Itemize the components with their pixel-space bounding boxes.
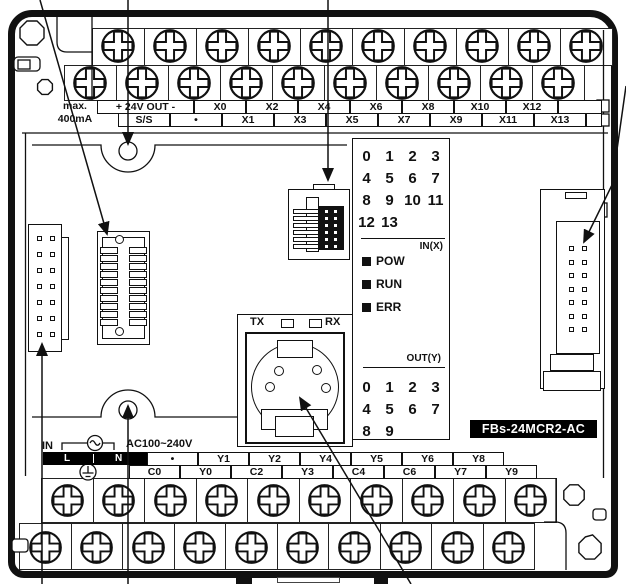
plc-device-diagram: max. 400mA + 24V OUT -X0X2X4X6X8X10X12S/… <box>0 0 626 584</box>
din-rail-clip <box>236 578 252 584</box>
power-input-area: IN AC100~240V L N <box>0 0 626 584</box>
ln-divider <box>93 454 94 463</box>
line-neutral-bar: L N <box>43 452 147 465</box>
neutral-label: N <box>115 452 122 465</box>
voltage-label: AC100~240V <box>126 438 192 450</box>
din-rail-clip <box>374 578 388 584</box>
din-rail-clip-bar <box>277 577 340 583</box>
line-label: L <box>64 452 70 465</box>
power-in-label: IN <box>42 440 53 452</box>
